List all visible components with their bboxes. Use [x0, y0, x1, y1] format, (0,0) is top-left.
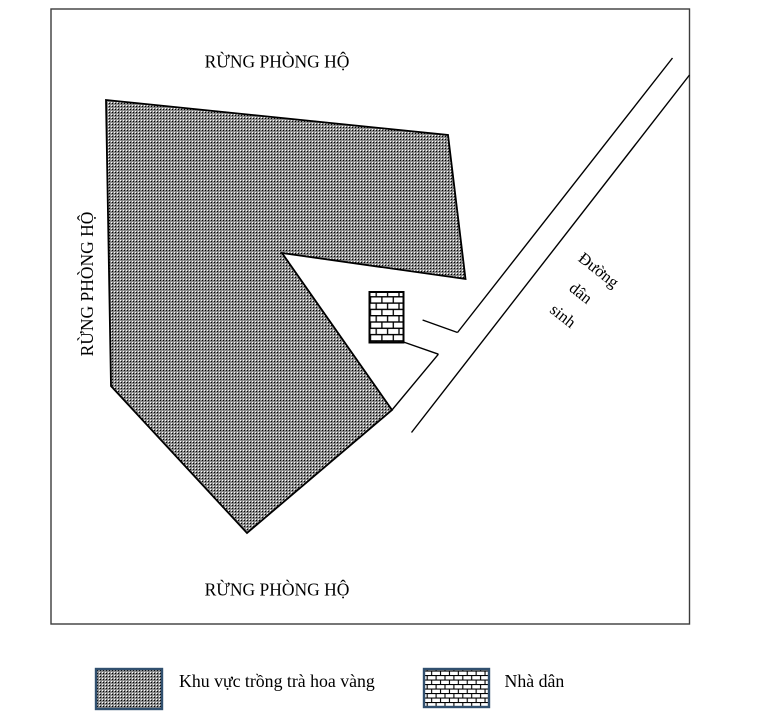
svg-text:RỪNG PHÒNG HỘ: RỪNG PHÒNG HỘ: [205, 580, 350, 600]
svg-text:RỪNG PHÒNG HỘ: RỪNG PHÒNG HỘ: [205, 51, 350, 71]
svg-text:Nhà dân: Nhà dân: [505, 671, 565, 691]
svg-text:RỪNG PHÒNG HỘ: RỪNG PHÒNG HỘ: [77, 212, 97, 357]
svg-text:Khu vực trồng trà hoa vàng: Khu vực trồng trà hoa vàng: [179, 671, 375, 691]
svg-text:sinh: sinh: [546, 300, 580, 332]
svg-text:dân: dân: [566, 278, 596, 308]
